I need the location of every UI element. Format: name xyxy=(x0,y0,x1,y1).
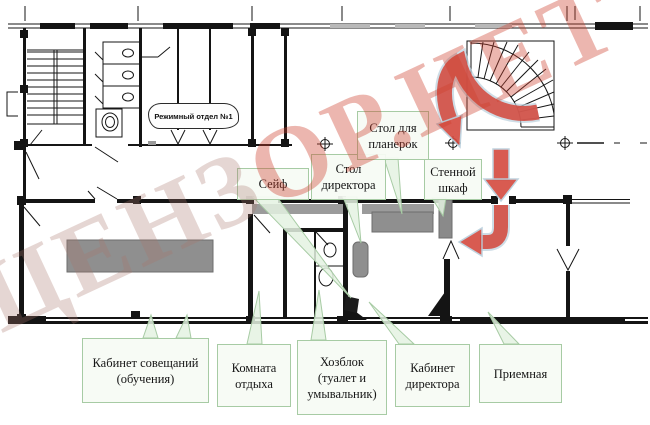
grid-ticks xyxy=(25,6,640,21)
left-edge-recess xyxy=(7,92,18,116)
callout-rest-room: Комната отдыха xyxy=(217,344,291,407)
floor-plan-page: Режимный отдел №1 Сейф Стол директора Ст… xyxy=(0,0,650,425)
toilet-icon xyxy=(123,49,134,57)
door-arrow xyxy=(443,241,459,259)
callout-planning-table: Стол для планерок xyxy=(357,111,429,160)
conference-table xyxy=(67,240,213,272)
safe xyxy=(344,296,359,313)
leader-reception xyxy=(488,312,519,344)
planning-table xyxy=(372,212,433,232)
door-arrow xyxy=(557,249,579,270)
stairwell xyxy=(20,28,86,147)
top-exterior-wall xyxy=(8,22,648,30)
door-arrow xyxy=(203,130,217,144)
toilet-icon xyxy=(123,71,134,79)
grid-marker xyxy=(317,137,333,151)
toilet-icon xyxy=(123,93,134,101)
sink-icon xyxy=(102,113,118,131)
callout-wall-closet: Стенной шкаф xyxy=(424,159,482,200)
callout-meeting-room: Кабинет совещаний (обучения) xyxy=(82,338,209,403)
director-desk xyxy=(353,242,368,277)
leader-utility-block xyxy=(311,290,326,340)
callout-regime-dept: Режимный отдел №1 xyxy=(148,103,239,129)
callout-safe: Сейф xyxy=(237,168,309,200)
grid-marker xyxy=(557,136,573,150)
sink-icon xyxy=(324,243,336,257)
callout-reception: Приемная xyxy=(479,344,562,403)
route-arrow-down xyxy=(484,149,518,201)
toilet-stalls xyxy=(95,42,140,137)
route-arrow-turn-left xyxy=(459,205,501,256)
door-arrow xyxy=(171,130,185,144)
callout-utility-block: Хозблок (туалет и умывальник) xyxy=(297,340,387,415)
callout-director-office: Кабинет директора xyxy=(395,344,470,407)
callout-director-desk: Стол директора xyxy=(311,154,386,200)
